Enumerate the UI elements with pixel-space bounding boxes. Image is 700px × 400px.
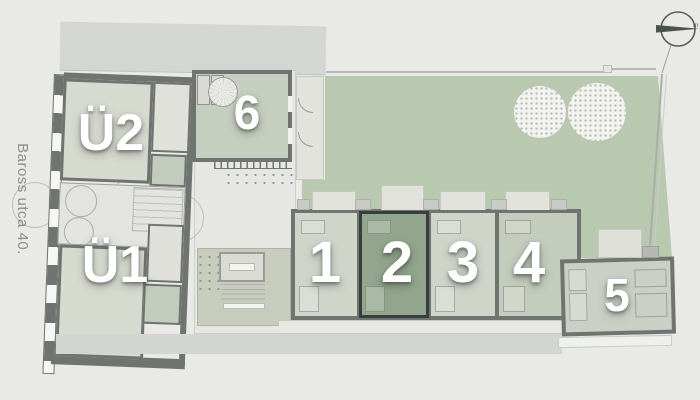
unit-2-label[interactable]: 2 — [373, 232, 421, 294]
garden-table — [229, 263, 255, 271]
unit-6-label[interactable]: 6 — [222, 86, 272, 142]
furniture — [635, 293, 668, 318]
railing — [214, 162, 292, 169]
pier — [355, 199, 371, 210]
unit-5-label[interactable]: 5 — [595, 268, 639, 322]
tree-icon — [514, 86, 566, 138]
utility-block — [642, 246, 659, 258]
terrace — [505, 191, 550, 210]
street-pavement-band — [56, 334, 562, 354]
sidewalk — [558, 335, 672, 348]
furniture — [634, 269, 666, 288]
compass-unit-label: m — [693, 22, 698, 29]
plot-boundary-line — [326, 71, 606, 73]
pier — [297, 199, 310, 210]
pier — [423, 199, 439, 210]
pier — [491, 199, 507, 210]
terrace — [296, 76, 324, 180]
terrace — [312, 191, 356, 210]
bathroom — [568, 269, 587, 291]
street-name-label: Baross utca 40. — [9, 99, 35, 299]
bathroom — [569, 293, 588, 321]
unit-U1-label[interactable]: Ü1 — [78, 234, 152, 296]
boundary-marker — [603, 65, 612, 73]
unit-3-label[interactable]: 3 — [439, 232, 487, 294]
bathroom — [150, 154, 187, 187]
unit-1-label[interactable]: 1 — [301, 232, 349, 294]
pier — [551, 199, 567, 210]
shrub-symbols — [224, 171, 294, 186]
north-arrow-icon: m — [648, 6, 700, 78]
shrub-symbols — [196, 253, 220, 295]
terrace — [598, 229, 642, 258]
neighbor-building-footprint — [60, 22, 327, 76]
terrace — [440, 191, 486, 210]
exterior-steps — [221, 284, 265, 303]
walkway — [279, 320, 579, 334]
unit-4-label[interactable]: 4 — [505, 232, 553, 294]
door-opening — [288, 96, 292, 112]
unit-U2-label[interactable]: Ü2 — [74, 102, 148, 164]
terrace — [381, 185, 424, 210]
site-plan-canvas: m Ü2 Ü1 6 — [0, 0, 700, 400]
tree-icon — [568, 83, 626, 141]
step-landing — [223, 303, 265, 309]
door-opening — [288, 128, 292, 144]
room — [151, 82, 192, 153]
